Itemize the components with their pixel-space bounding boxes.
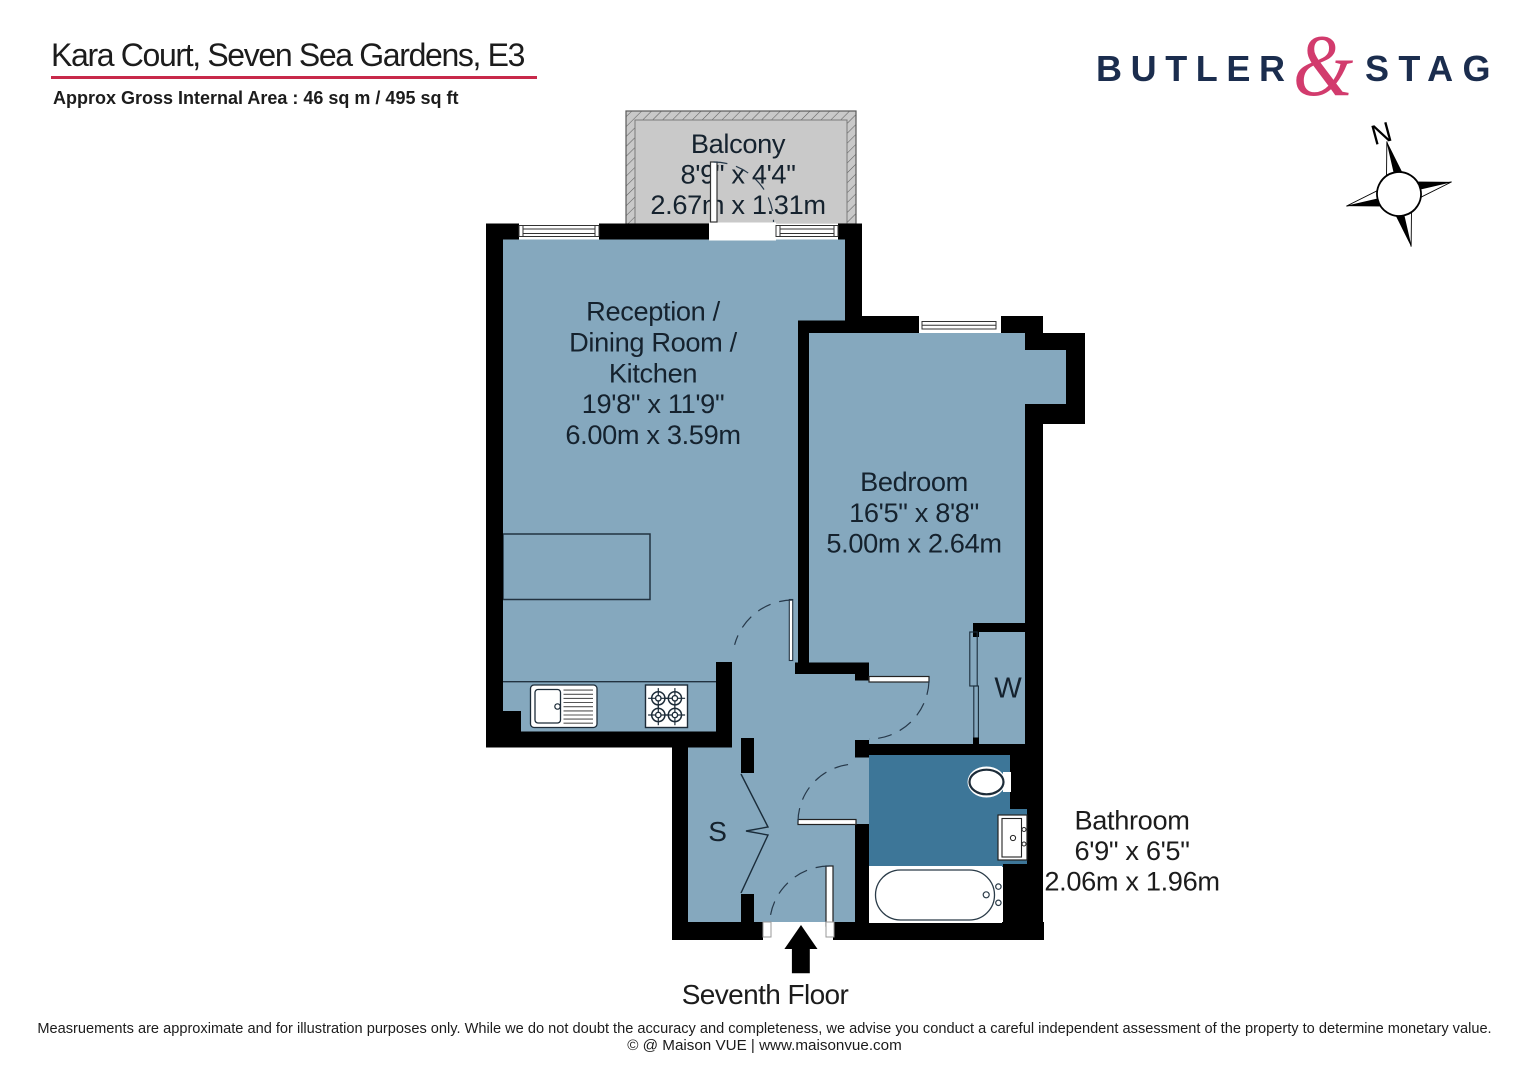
svg-text:5.00m x 2.64m: 5.00m x 2.64m: [826, 528, 1001, 559]
svg-text:Dining Room /: Dining Room /: [569, 327, 738, 358]
svg-text:Seventh Floor: Seventh Floor: [682, 979, 849, 1010]
svg-text:2.67m x 1.31m: 2.67m x 1.31m: [650, 189, 825, 220]
svg-text:Balcony: Balcony: [691, 128, 786, 159]
svg-text:Kitchen: Kitchen: [609, 357, 697, 388]
svg-text:Bedroom: Bedroom: [860, 466, 968, 497]
svg-text:6.00m x 3.59m: 6.00m x 3.59m: [565, 419, 740, 450]
svg-text:N: N: [1368, 116, 1396, 151]
svg-text:6'9" x 6'5": 6'9" x 6'5": [1074, 835, 1189, 866]
svg-text:2.06m x 1.96m: 2.06m x 1.96m: [1044, 866, 1219, 897]
svg-text:S: S: [708, 816, 727, 847]
svg-text:W: W: [994, 672, 1022, 704]
svg-text:8'9" x 4'4": 8'9" x 4'4": [680, 159, 795, 190]
svg-text:Reception /: Reception /: [586, 296, 720, 327]
svg-text:16'5" x 8'8": 16'5" x 8'8": [849, 497, 979, 528]
svg-text:19'8" x 11'9": 19'8" x 11'9": [582, 388, 725, 419]
svg-text:Bathroom: Bathroom: [1074, 804, 1189, 835]
